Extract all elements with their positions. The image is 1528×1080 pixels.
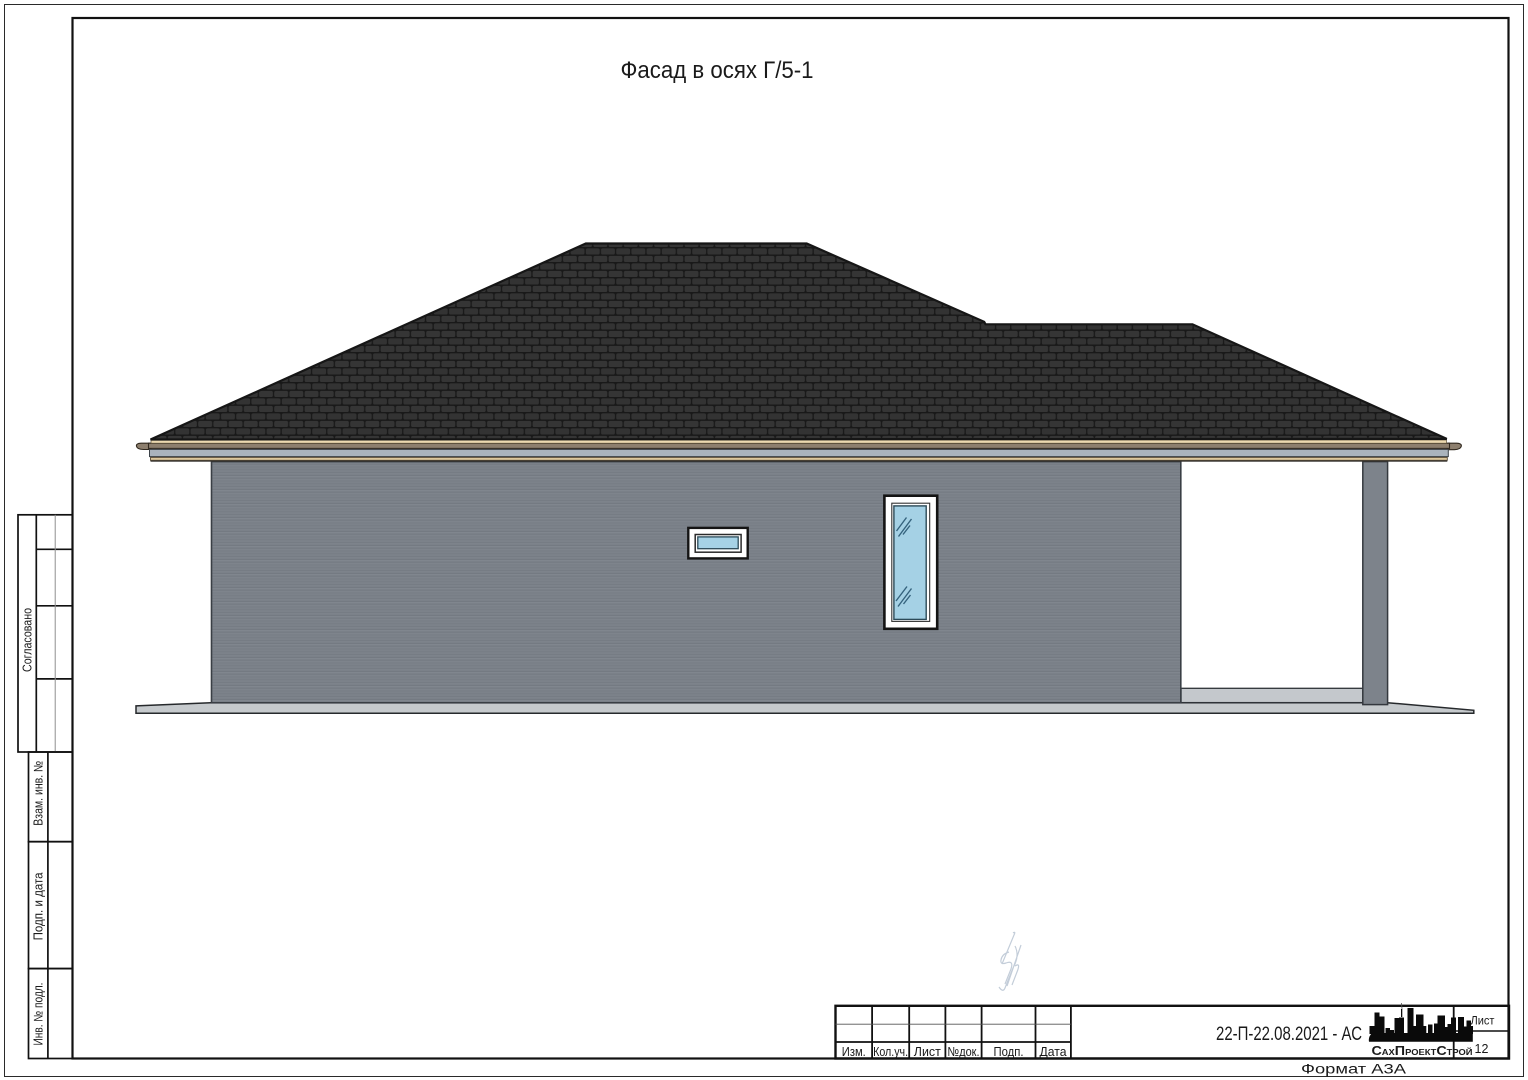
svg-text:Дата: Дата xyxy=(1040,1044,1068,1059)
svg-text:22-П-22.08.2021 - АС: 22-П-22.08.2021 - АС xyxy=(1216,1024,1362,1045)
svg-text:Изм.: Изм. xyxy=(842,1044,866,1059)
svg-text:Лист: Лист xyxy=(914,1044,941,1059)
svg-text:Фасад в осях Г/5-1: Фасад в осях Г/5-1 xyxy=(621,57,814,84)
svg-text:Подп. и дата: Подп. и дата xyxy=(31,872,45,940)
svg-text:Согласовано: Согласовано xyxy=(21,608,35,672)
svg-text:Формат А3А: Формат А3А xyxy=(1301,1062,1406,1077)
svg-text:№док.: №док. xyxy=(948,1044,980,1059)
svg-text:Инв. № подл.: Инв. № подл. xyxy=(31,983,45,1046)
svg-text:Подп.: Подп. xyxy=(994,1044,1024,1059)
svg-text:Кол.уч.: Кол.уч. xyxy=(873,1044,908,1059)
svg-text:12: 12 xyxy=(1475,1042,1489,1056)
svg-text:Взам. инв. №: Взам. инв. № xyxy=(31,761,45,826)
svg-text:Лист: Лист xyxy=(1471,1016,1496,1028)
